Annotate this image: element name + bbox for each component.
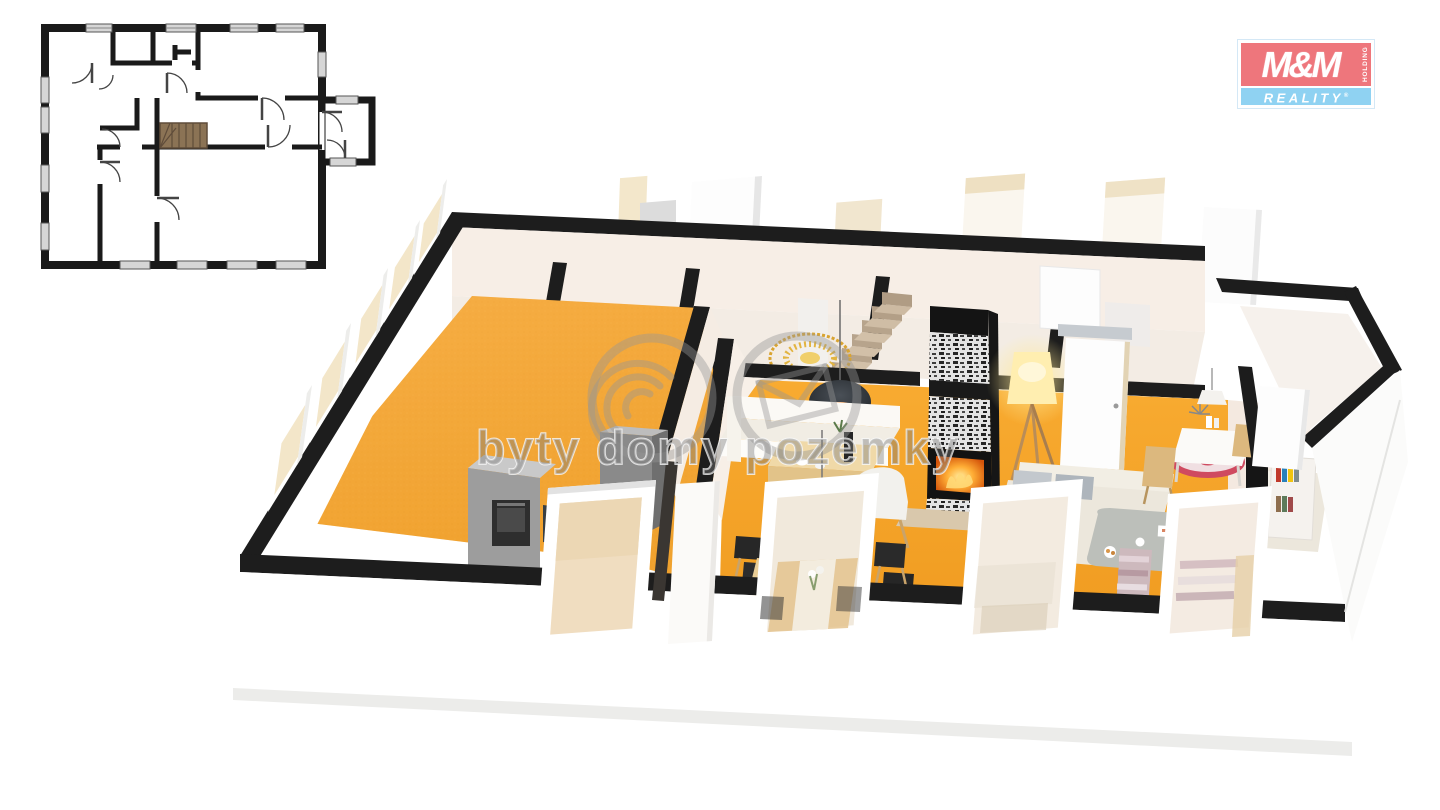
- door-panel: [1252, 386, 1310, 470]
- floor-plan-2d: [41, 24, 372, 269]
- logo-mm-text: M&M: [1262, 47, 1351, 83]
- real-estate-floorplan-image: byty domy pozemky: [0, 0, 1440, 810]
- window-frame: [536, 480, 656, 652]
- pendant-lamp-small: [1197, 390, 1227, 405]
- logo-holding-text: HOLDING: [1360, 45, 1371, 84]
- wardrobe: [1040, 266, 1100, 332]
- logo-reality-bar: REALITY®: [1241, 88, 1371, 105]
- floor-plan-3d-render: byty domy pozemky: [0, 0, 1440, 810]
- logo-reality-text: REALITY: [1264, 90, 1344, 105]
- mug: [1136, 538, 1145, 547]
- wicker-chair: [1142, 446, 1176, 488]
- stairs-2d: [160, 123, 207, 148]
- interior-door: [1058, 324, 1132, 470]
- mm-reality-logo: M&M HOLDING REALITY®: [1238, 40, 1374, 108]
- dresser: [1105, 302, 1150, 347]
- window-frame: [1156, 486, 1272, 650]
- watermark-text: byty domy pozemky: [476, 421, 959, 474]
- window-frame: [752, 473, 879, 650]
- window-frame: [958, 479, 1083, 652]
- registered-mark: ®: [1344, 93, 1348, 99]
- logo-top-red-panel: M&M HOLDING: [1241, 43, 1371, 86]
